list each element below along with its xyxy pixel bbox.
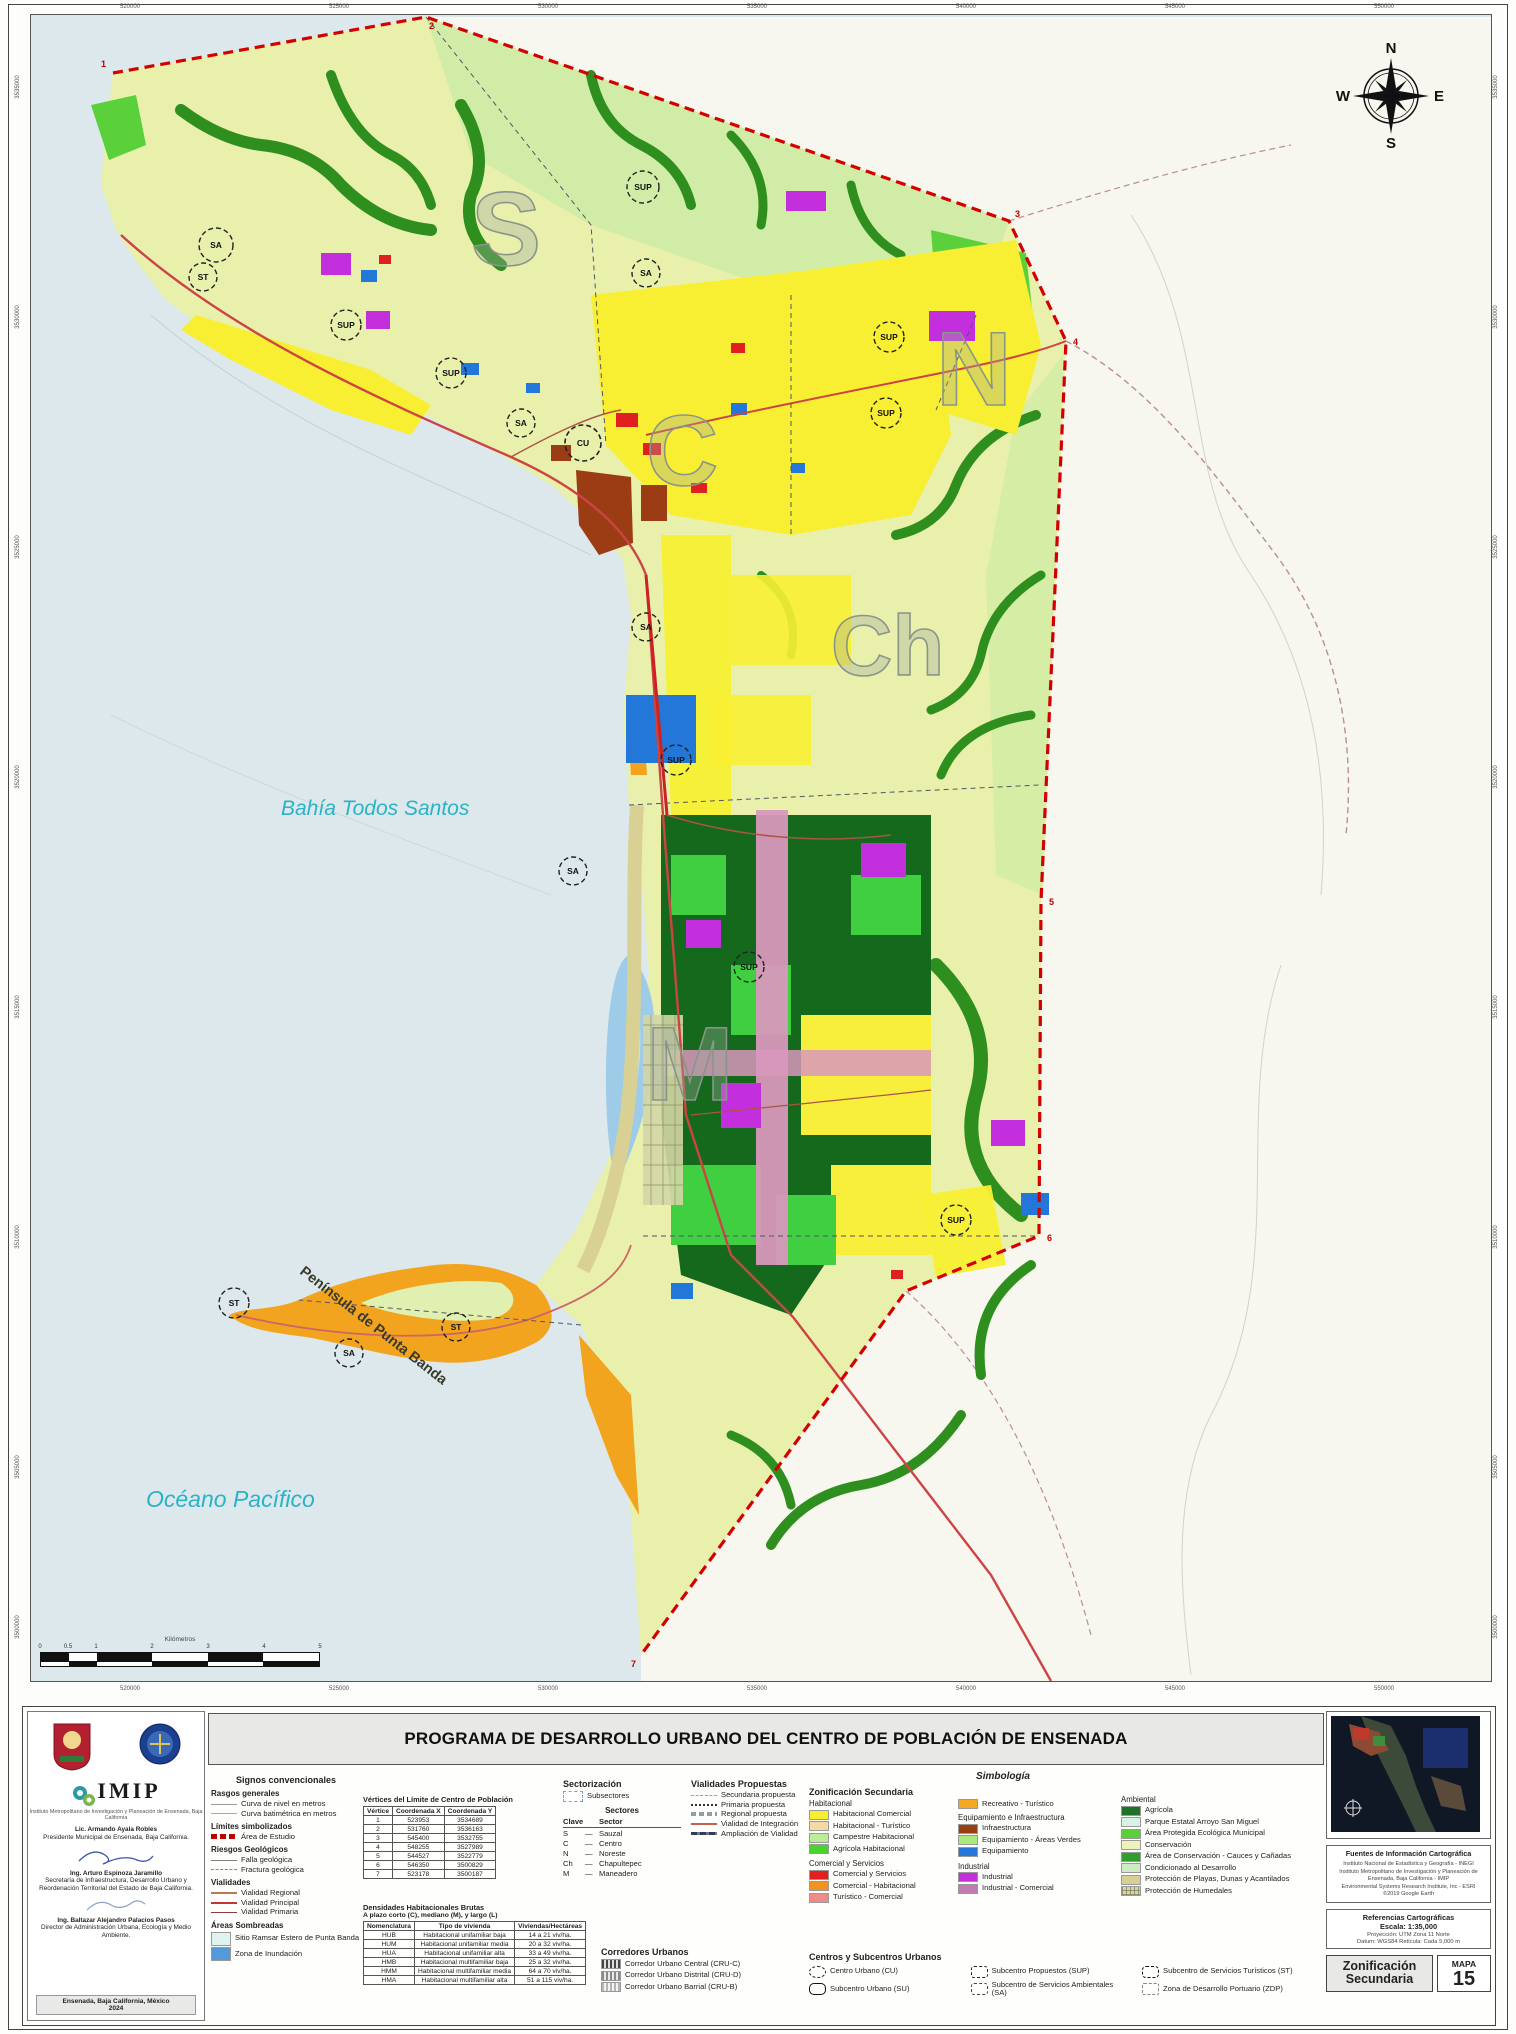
su-marker-swatch [809, 1983, 826, 1995]
grid-label-y: 3535000 [15, 57, 21, 117]
zoning-map: 1 2 3 4 5 6 7 S N C Ch M Bahía Todos San… [31, 15, 1491, 1681]
signature-icon [81, 1894, 151, 1916]
mapa-number: 15 [1438, 1969, 1490, 1989]
vertices-title: Vértices del Límite de Centro de Poblaci… [363, 1795, 588, 1804]
datum-value: Datum: WGS84 Retícula: Cada 5,000 m [1331, 1939, 1486, 1945]
scale-tick: 0.5 [64, 1644, 72, 1650]
secundaria-propuesta-swatch [691, 1795, 717, 1796]
vialidades-heading: Vialidades [211, 1878, 361, 1887]
legend-item-label: Agrícola [1145, 1806, 1173, 1814]
proyeccion-value: Proyección: UTM Zona 11 Norte [1331, 1932, 1486, 1938]
industrial-heading: Industrial [958, 1862, 1113, 1871]
primary-road-swatch [211, 1912, 237, 1913]
svg-text:SUP: SUP [442, 368, 460, 378]
legend-item-label: Campestre Habitacional [833, 1833, 914, 1841]
legend-item-label: Turístico - Comercial [833, 1893, 903, 1901]
legend-item-label: Área de Estudio [241, 1833, 295, 1841]
sector-letter-noreste: N [936, 311, 1012, 428]
svg-text:SUP: SUP [740, 962, 758, 972]
signos-section: Signos convencionales Rasgos generales C… [211, 1775, 361, 1963]
scale-tick: 3 [206, 1644, 209, 1650]
sector-row: S—Sauzal [563, 1829, 681, 1838]
corredores-section: Corredores Urbanos Corredor Urbano Centr… [601, 1947, 801, 1994]
zonificacion-equip-col: Recreativo - Turístico Equipamiento e In… [958, 1799, 1113, 1895]
page-title: PROGRAMA DE DESARROLLO URBANO DEL CENTRO… [404, 1729, 1127, 1749]
svg-text:CU: CU [577, 438, 589, 448]
zoning-swatch [1121, 1829, 1141, 1839]
compass-s: S [1386, 135, 1396, 152]
svg-text:ST: ST [451, 1322, 463, 1332]
fracture-line-swatch [211, 1869, 237, 1870]
grid-label-x: 535000 [727, 1686, 787, 1692]
legend-item-label: Vialidad Principal [241, 1899, 299, 1907]
table-row: 25317603536163 [364, 1825, 496, 1834]
sectores-heading: Sectores [563, 1806, 681, 1815]
zoning-swatch [809, 1833, 829, 1843]
map-frame: 1 2 3 4 5 6 7 S N C Ch M Bahía Todos San… [30, 14, 1492, 1682]
sector-letter-chapultepec: Ch [831, 599, 944, 694]
svg-text:SA: SA [640, 268, 652, 278]
legend-item-label: Subcentro de Servicios Ambientales (SA) [992, 1981, 1128, 1997]
grid-label-y: 3505000 [15, 1437, 21, 1497]
legend-item-label: Ampliación de Vialidad [721, 1830, 798, 1838]
grid-label-x: 520000 [100, 1686, 160, 1692]
cru-d-swatch [601, 1971, 621, 1981]
credits-place: Ensenada, Baja California, México [62, 1998, 169, 2005]
scale-tick: 0 [38, 1644, 41, 1650]
legend-item-label: Curva de nivel en metros [241, 1800, 325, 1808]
municipal-shield-icon [138, 1720, 182, 1772]
imip-subtitle: Instituto Metropolitano de Investigación… [28, 1809, 204, 1821]
signature-icon [71, 1843, 161, 1869]
table-row: 45482553527989 [364, 1843, 496, 1852]
legend-item-label: Curva batimétrica en metros [241, 1810, 336, 1818]
svg-text:SA: SA [640, 622, 652, 632]
official-block: Ing. Baltazar Alejandro Palacios Pasos D… [28, 1917, 204, 1940]
legend-item-label: Zona de Inundación [235, 1950, 302, 1958]
svg-text:SUP: SUP [947, 1215, 965, 1225]
sectores-table: Clave Sector S—Sauzal C—Centro N—Noreste… [563, 1817, 681, 1878]
contour-line-swatch [211, 1804, 237, 1805]
vertices-table: Vértice Coordenada X Coordenada Y 152395… [363, 1806, 496, 1879]
sector-row: C—Centro [563, 1839, 681, 1848]
coat-of-arms-row [28, 1720, 204, 1772]
signos-heading: Signos convencionales [211, 1775, 361, 1785]
bathymetric-line-swatch [211, 1813, 237, 1814]
subsector-swatch [563, 1791, 583, 1802]
flood-zone-swatch [211, 1947, 231, 1961]
bahia-label: Bahía Todos Santos [281, 797, 470, 820]
zoning-swatch [809, 1870, 829, 1880]
legend-item-label: Área Protegida Ecológica Municipal [1145, 1829, 1265, 1837]
zoning-swatch [1121, 1817, 1141, 1827]
zoning-swatch [1121, 1806, 1141, 1816]
location-inset-box [1326, 1711, 1491, 1839]
zoning-swatch [809, 1810, 829, 1820]
grid-label-x: 545000 [1145, 4, 1205, 10]
compass-e: E [1434, 88, 1444, 105]
legend-item-label: Zona de Desarrollo Portuario (ZDP) [1163, 1985, 1283, 1993]
referencias-box: Referencias Cartográficas Escala: 1:35,0… [1326, 1909, 1491, 1949]
col-header: Sector [599, 1817, 623, 1826]
legend-item-label: Corredor Urbano Barrial (CRU-B) [625, 1983, 737, 1991]
grid-label-x: 520000 [100, 4, 160, 10]
fuente-line: Instituto Nacional de Estadística y Geog… [1331, 1861, 1486, 1869]
zoning-swatch [958, 1799, 978, 1809]
zoning-swatch [1121, 1875, 1141, 1885]
legend-item-label: Comercial - Habitacional [833, 1882, 916, 1890]
legend-item-label: Infraestructura [982, 1824, 1031, 1832]
official-name: Lic. Armando Ayala Robles [28, 1826, 204, 1834]
map-number-box: MAPA 15 [1437, 1955, 1491, 1993]
legend-item-label: Fractura geológica [241, 1866, 304, 1874]
col-header: Coordenada X [393, 1807, 445, 1816]
scale-bar-segments-alt [40, 1662, 320, 1667]
compass-w: W [1336, 88, 1351, 105]
imip-gears-icon [71, 1784, 97, 1808]
legend-item-label: Condicionado al Desarrollo [1145, 1864, 1236, 1872]
legend-item-label: Comercial y Servicios [833, 1870, 906, 1878]
col-header: Vértice [364, 1807, 393, 1816]
legend-item-label: Secundaria propuesta [721, 1791, 795, 1799]
svg-text:ST: ST [198, 272, 210, 282]
legend-item-label: Regional propuesta [721, 1810, 787, 1818]
legend-item-label: Corredor Urbano Distrital (CRU-D) [625, 1971, 741, 1979]
imip-logo: IMIP Instituto Metropolitano de Investig… [28, 1778, 204, 1821]
scale-bar-title: Kilómetros [40, 1636, 320, 1643]
official-name: Ing. Baltazar Alejandro Palacios Pasos [28, 1917, 204, 1925]
svg-text:3: 3 [1015, 209, 1020, 219]
grid-label-x: 525000 [309, 1686, 369, 1692]
fuente-line: ©2019 Google Earth [1331, 1891, 1486, 1899]
official-block: Lic. Armando Ayala Robles Presidente Mun… [28, 1826, 204, 1841]
table-row: 65463503500829 [364, 1861, 496, 1870]
sector-letter-sauzal: S [471, 171, 541, 288]
sector-letter-centro: C [646, 395, 718, 507]
col-header: Coordenada Y [444, 1807, 496, 1816]
compass-n: N [1386, 40, 1397, 57]
svg-text:SUP: SUP [337, 320, 355, 330]
legend-item-label: Equipamiento - Áreas Verdes [982, 1836, 1081, 1844]
grid-label-y: 3500000 [15, 1597, 21, 1657]
principal-road-swatch [211, 1902, 237, 1904]
grid-label-y: 3530000 [1493, 287, 1499, 347]
legend-item-label: Primaria propuesta [721, 1801, 785, 1809]
densidades-subtitle: A plazo corto (C), mediano (M), y largo … [363, 1912, 663, 1919]
simbologia-heading: Simbología [853, 1771, 1153, 1782]
sector-letter-maneadero: M [646, 1006, 733, 1123]
zdp-marker-swatch [1142, 1983, 1159, 1995]
zonificacion-habitacional-col: Zonificación Secundaria Habitacional Hab… [809, 1787, 949, 1904]
legend-item-label: Parque Estatal Arroyo San Miguel [1145, 1818, 1259, 1826]
legend-item-label: Vialidad Regional [241, 1889, 300, 1897]
sector-row: Ch—Chapultepec [563, 1859, 681, 1868]
referencias-heading: Referencias Cartográficas [1331, 1913, 1486, 1922]
official-title: Presidente Municipal de Ensenada, Baja C… [28, 1834, 204, 1842]
state-shield-icon [50, 1720, 94, 1772]
scale-bar: Kilómetros 0 0.5 1 2 3 4 5 [40, 1636, 320, 1667]
sectorizacion-section: Sectorización Subsectores Sectores Clave… [563, 1779, 681, 1879]
grid-label-y: 3525000 [1493, 517, 1499, 577]
oceano-label: Océano Pacífico [146, 1486, 315, 1512]
legend-item-label: Subsectores [587, 1792, 629, 1800]
regional-road-swatch [211, 1892, 237, 1894]
svg-text:5: 5 [1049, 897, 1054, 907]
cartographic-info-panel: Fuentes de Información Cartográfica Inst… [1326, 1711, 1491, 2019]
grid-label-y: 3510000 [1493, 1207, 1499, 1267]
zonificacion-heading: Zonificación Secundaria [809, 1787, 949, 1797]
scale-tick: 1 [94, 1644, 97, 1650]
sectorizacion-heading: Sectorización [563, 1779, 681, 1789]
fuentes-heading: Fuentes de Información Cartográfica [1331, 1849, 1486, 1858]
regional-propuesta-swatch [691, 1812, 717, 1816]
svg-text:SA: SA [515, 418, 527, 428]
comercial-heading: Comercial y Servicios [809, 1859, 949, 1868]
equipamiento-heading: Equipamiento e Infraestructura [958, 1813, 1113, 1822]
vertices-section: Vértices del Límite de Centro de Poblaci… [363, 1795, 588, 1879]
table-row: 15239533534689 [364, 1816, 496, 1825]
legend-item-label: Vialidad Primaria [241, 1908, 298, 1916]
cu-marker-swatch [809, 1966, 826, 1978]
sa-marker-swatch [971, 1983, 988, 1995]
legend-item-label: Subcentro Urbano (SU) [830, 1985, 909, 1993]
legend-item-label: Recreativo - Turístico [982, 1800, 1054, 1808]
legend-item-label: Industrial - Comercial [982, 1884, 1054, 1892]
st-marker-swatch [1142, 1966, 1159, 1978]
grid-label-x: 550000 [1354, 4, 1414, 10]
integracion-swatch [691, 1823, 717, 1825]
grid-label-x: 530000 [518, 4, 578, 10]
grid-label-y: 3510000 [15, 1207, 21, 1267]
credits-footer: Ensenada, Baja California, México 2024 [36, 1995, 196, 2015]
ambiental-heading: Ambiental [1121, 1795, 1331, 1804]
sup-marker-swatch [971, 1966, 988, 1978]
legend-item-label: Habitacional - Turístico [833, 1822, 910, 1830]
grid-label-y: 3505000 [1493, 1437, 1499, 1497]
svg-text:SA: SA [210, 240, 222, 250]
legend-item-label: Protección de Playas, Dunas y Acantilado… [1145, 1875, 1289, 1883]
escala-value: Escala: 1:35,000 [1331, 1922, 1486, 1931]
grid-label-x: 530000 [518, 1686, 578, 1692]
col-header: Viviendas/Hectáreas [515, 1922, 586, 1931]
sector-row: M—Maneadero [563, 1869, 681, 1878]
areas-heading: Áreas Sombreadas [211, 1921, 361, 1930]
grid-label-y: 3515000 [15, 977, 21, 1037]
scale-bar-segments [40, 1652, 320, 1662]
table-row: HMBHabitacional multifamiliar baja25 a 3… [364, 1958, 586, 1967]
svg-text:SUP: SUP [877, 408, 895, 418]
legend-item-label: Sitio Ramsar Estero de Punta Banda [235, 1934, 359, 1942]
study-area-line-swatch [211, 1834, 237, 1839]
zoning-swatch [809, 1893, 829, 1903]
habitacional-heading: Habitacional [809, 1799, 949, 1808]
primaria-propuesta-swatch [691, 1804, 717, 1806]
grid-label-x: 525000 [309, 4, 369, 10]
grid-label-y: 3530000 [15, 287, 21, 347]
zoning-swatch [958, 1884, 978, 1894]
svg-text:SUP: SUP [880, 332, 898, 342]
col-header: Tipo de vivienda [414, 1922, 514, 1931]
credits-panel: IMIP Instituto Metropolitano de Investig… [27, 1711, 205, 2021]
legend-item-label: Vialidad de Integración [721, 1820, 798, 1828]
zoning-swatch [1121, 1863, 1141, 1873]
svg-text:SA: SA [567, 866, 579, 876]
legend-item-label: Falla geológica [241, 1856, 292, 1864]
table-row: HUMHabitacional unifamiliar media20 a 32… [364, 1940, 586, 1949]
table-row: 35454003532755 [364, 1834, 496, 1843]
scale-tick: 4 [262, 1644, 265, 1650]
zoning-swatch [958, 1847, 978, 1857]
grid-label-x: 550000 [1354, 1686, 1414, 1692]
scale-tick: 2 [150, 1644, 153, 1650]
rasgos-heading: Rasgos generales [211, 1789, 361, 1798]
densidades-title: Densidades Habitacionales Brutas [363, 1903, 663, 1912]
zonificacion-ambiental-col: Ambiental Agrícola Parque Estatal Arroyo… [1121, 1795, 1331, 1898]
ampliacion-swatch [691, 1832, 717, 1835]
densidades-table: Nomenclatura Tipo de vivienda Viviendas/… [363, 1921, 586, 1985]
legend-item-label: Habitacional Comercial [833, 1810, 911, 1818]
official-title: Director de Administración Urbana, Ecolo… [28, 1924, 204, 1939]
legend-item-label: Agrícola Habitacional [833, 1845, 905, 1853]
svg-text:6: 6 [1047, 1233, 1052, 1243]
table-row: 75231783500187 [364, 1870, 496, 1879]
table-row: HMAHabitacional multifamiliar alta51 a 1… [364, 1976, 586, 1985]
limites-heading: Límites simbolizados [211, 1822, 361, 1831]
official-block: Ing. Arturo Espinoza Jaramillo Secretarí… [28, 1870, 204, 1893]
scale-bar-ticks: 0 0.5 1 2 3 4 5 [40, 1644, 320, 1652]
grid-label-x: 545000 [1145, 1686, 1205, 1692]
cru-c-swatch [601, 1959, 621, 1969]
zoning-swatch [809, 1844, 829, 1854]
fuente-line: Instituto Metropolitano de Investigación… [1331, 1869, 1486, 1884]
svg-text:1: 1 [101, 59, 106, 69]
zoning-swatch [1121, 1840, 1141, 1850]
grid-label-x: 540000 [936, 4, 996, 10]
zoning-swatch [958, 1835, 978, 1845]
legend-item-label: Industrial [982, 1873, 1013, 1881]
svg-text:2: 2 [429, 21, 434, 31]
zoning-swatch [809, 1881, 829, 1891]
legend-item-label: Centro Urbano (CU) [830, 1967, 898, 1975]
svg-text:7: 7 [631, 1659, 636, 1669]
title-bar: PROGRAMA DE DESARROLLO URBANO DEL CENTRO… [208, 1713, 1324, 1765]
table-row: HUBHabitacional unifamiliar baja14 a 21 … [364, 1931, 586, 1940]
official-name: Ing. Arturo Espinoza Jaramillo [28, 1870, 204, 1878]
map-name-box: Zonificación Secundaria [1326, 1955, 1433, 1993]
zoning-swatch [1121, 1852, 1141, 1862]
riesgos-heading: Riesgos Geológicos [211, 1845, 361, 1854]
centros-section: Centros y Subcentros Urbanos Centro Urba… [809, 1952, 1329, 1998]
table-row: HMMHabitacional multifamiliar media64 a … [364, 1967, 586, 1976]
sector-row: N—Noreste [563, 1849, 681, 1858]
svg-text:SUP: SUP [634, 182, 652, 192]
credits-year: 2024 [109, 2005, 124, 2012]
svg-text:ST: ST [229, 1298, 241, 1308]
ramsar-swatch [211, 1932, 231, 1946]
legend-item-label: Protección de Humedales [1145, 1887, 1232, 1895]
corredores-heading: Corredores Urbanos [601, 1947, 801, 1957]
map-sheet: { "title": "PROGRAMA DE DESARROLLO URBAN… [0, 0, 1516, 2034]
fault-line-swatch [211, 1860, 237, 1861]
scale-tick: 5 [318, 1644, 321, 1650]
zoning-swatch [958, 1824, 978, 1834]
centros-heading: Centros y Subcentros Urbanos [809, 1952, 1329, 1962]
cru-b-swatch [601, 1982, 621, 1992]
grid-label-y: 3520000 [1493, 747, 1499, 807]
legend-item-label: Corredor Urbano Central (CRU-C) [625, 1960, 740, 1968]
humedales-swatch [1121, 1886, 1141, 1896]
grid-label-y: 3515000 [1493, 977, 1499, 1037]
grid-label-x: 540000 [936, 1686, 996, 1692]
col-header: Nomenclatura [364, 1922, 415, 1931]
legend-item-label: Área de Conservación - Cauces y Cañadas [1145, 1852, 1291, 1860]
table-row: HUAHabitacional unifamiliar alta33 a 49 … [364, 1949, 586, 1958]
zoning-swatch [809, 1821, 829, 1831]
grid-label-y: 3535000 [1493, 57, 1499, 117]
grid-label-y: 3520000 [15, 747, 21, 807]
table-row: 55445273522779 [364, 1852, 496, 1861]
grid-label-y: 3525000 [15, 517, 21, 577]
imip-acronym: IMIP [97, 1778, 160, 1803]
svg-text:4: 4 [1073, 337, 1078, 347]
col-header: Clave [563, 1817, 585, 1826]
zoning-swatch [958, 1872, 978, 1882]
svg-text:SUP: SUP [667, 755, 685, 765]
legend-item-label: Subcentro de Servicios Turísticos (ST) [1163, 1967, 1293, 1975]
grid-label-x: 535000 [727, 4, 787, 10]
location-inset-map [1331, 1716, 1480, 1832]
legend-item-label: Equipamiento [982, 1847, 1028, 1855]
official-title: Secretaría de Infraestructura, Desarroll… [28, 1877, 204, 1892]
grid-label-y: 3500000 [1493, 1597, 1499, 1657]
legend-item-label: Conservación [1145, 1841, 1191, 1849]
fuentes-box: Fuentes de Información Cartográfica Inst… [1326, 1845, 1491, 1903]
legend-item-label: Subcentro Propuestos (SUP) [992, 1967, 1090, 1975]
legend-panel: IMIP Instituto Metropolitano de Investig… [22, 1706, 1496, 2026]
svg-text:SA: SA [343, 1348, 355, 1358]
